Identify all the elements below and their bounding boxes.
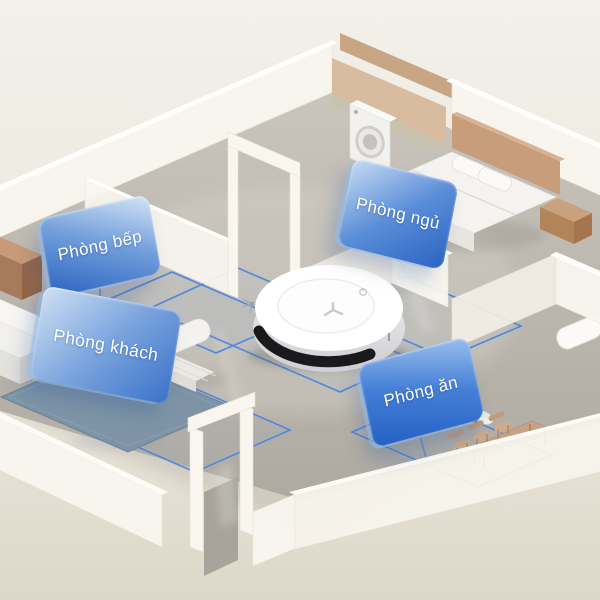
product-render: Phòng bếp Phòng ngủ Phòng khách Phòng ăn bbox=[0, 0, 600, 600]
robot-top-plate bbox=[278, 279, 374, 333]
room-label-living-text: Phòng khách bbox=[52, 324, 160, 365]
washer-dial bbox=[354, 110, 358, 114]
room-label-kitchen-text: Phòng bếp bbox=[56, 226, 143, 265]
room-label-dining-text: Phòng ăn bbox=[382, 372, 460, 411]
room-label-bedroom-text: Phòng ngủ bbox=[354, 194, 441, 234]
